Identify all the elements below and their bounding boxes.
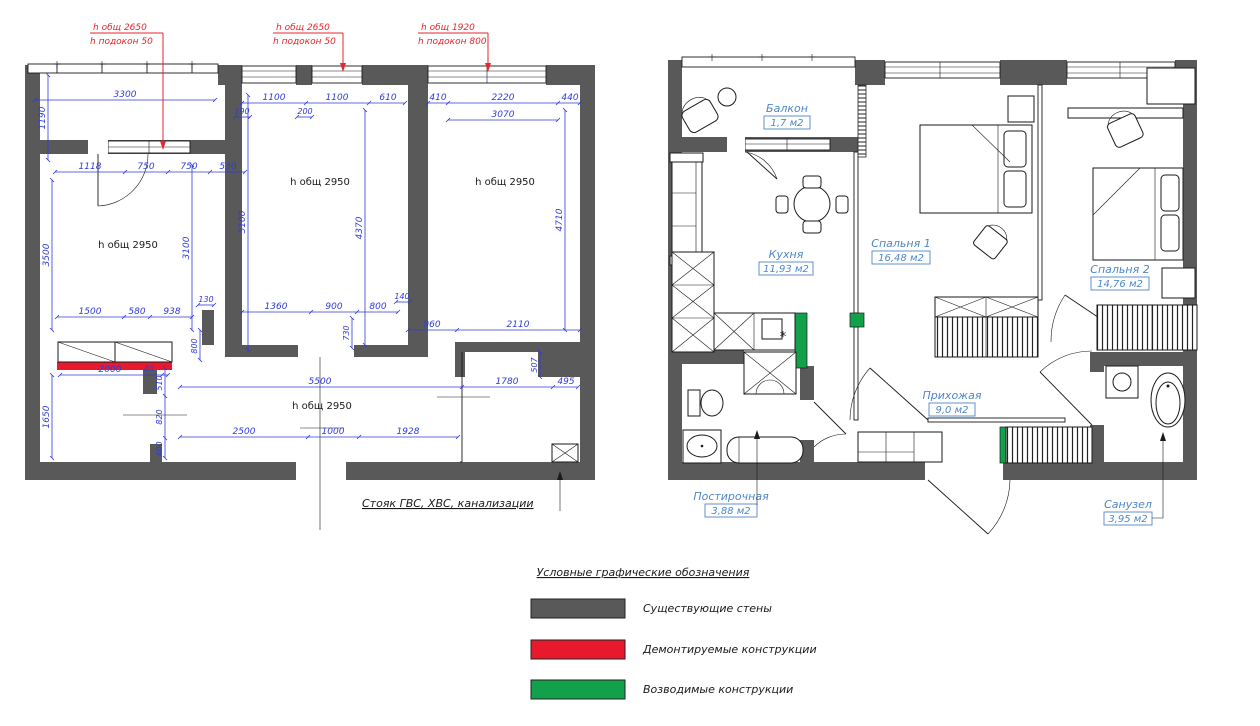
dim-label: 400 bbox=[155, 441, 164, 456]
room-area-badge: 3,95 м2 bbox=[1108, 514, 1147, 525]
window-callout: h подокон 50 bbox=[273, 37, 336, 47]
nightstand-icon bbox=[1008, 96, 1034, 122]
riser-note-text: Стояк ГВС, ХВС, канализации bbox=[362, 497, 534, 510]
window-callout: h подокон 50 bbox=[90, 37, 153, 47]
dim-label: 580 bbox=[128, 307, 145, 317]
shoe-bench-icon bbox=[858, 432, 942, 462]
dim-label: 5500 bbox=[309, 377, 332, 387]
dim-label: 1928 bbox=[397, 427, 420, 437]
floor-plan-sheet: 3300 1190 1118 750 750 530 1100 1100 610… bbox=[0, 0, 1260, 726]
dim-label: 2220 bbox=[492, 93, 515, 103]
sofa-icon bbox=[670, 153, 703, 265]
dim-label: 190 bbox=[234, 107, 249, 116]
room-label: Спальня 2 bbox=[1090, 263, 1149, 276]
toilet-icon bbox=[1106, 366, 1138, 398]
room-label: Прихожая bbox=[923, 389, 982, 402]
dim-label: 140 bbox=[394, 292, 409, 301]
side-table-icon bbox=[718, 88, 736, 106]
legend-swatch-existing-walls bbox=[531, 599, 625, 618]
dim-label: 1780 bbox=[496, 377, 519, 387]
dim-label: 440 bbox=[561, 93, 578, 103]
legend-label: Демонтируемые конструкции bbox=[642, 643, 817, 656]
riser-symbol bbox=[552, 444, 578, 462]
washing-machine-icon bbox=[727, 437, 803, 463]
room-area-badge: 11,93 м2 bbox=[763, 264, 809, 275]
left-plan: 3300 1190 1118 750 750 530 1100 1100 610… bbox=[25, 23, 595, 530]
room-height-label: h общ 2950 bbox=[290, 177, 350, 188]
window-callout: h общ 1920 bbox=[421, 23, 475, 33]
window-callouts: h общ 2650 h подокон 50 h общ 2650 h под… bbox=[90, 23, 491, 150]
kitchen-counter bbox=[58, 342, 172, 362]
armchair-icon bbox=[677, 92, 720, 135]
legend-title: Условные графические обозначения bbox=[537, 566, 750, 579]
dim-label: 820 bbox=[155, 409, 164, 424]
dim-label: 2000 bbox=[99, 365, 122, 375]
balcony-glazing bbox=[682, 54, 855, 67]
bathtub-icon bbox=[1151, 373, 1185, 427]
dim-label: 3100 bbox=[182, 236, 192, 259]
dim-label: 750 bbox=[180, 162, 197, 172]
dim-label: 900 bbox=[325, 302, 342, 312]
dim-label: 960 bbox=[423, 320, 440, 330]
window-callout: h общ 2650 bbox=[276, 23, 330, 33]
toilet-icon bbox=[688, 390, 723, 416]
dim-label: 3070 bbox=[492, 110, 515, 120]
dim-label: 5100 bbox=[238, 210, 248, 233]
room-label: Постирочная bbox=[693, 490, 769, 503]
room-label: Спальня 1 bbox=[871, 237, 930, 250]
dim-label: 2110 bbox=[507, 320, 530, 330]
dim-label: 4370 bbox=[355, 216, 365, 239]
dim-label: 1100 bbox=[326, 93, 349, 103]
room-area-badge: 9,0 м2 bbox=[936, 405, 969, 416]
room-area-badge: 1,7 м2 bbox=[771, 118, 804, 129]
bed-icon bbox=[920, 125, 1032, 213]
room-height-label: h общ 2950 bbox=[292, 401, 352, 412]
dim-label: 530 bbox=[219, 162, 236, 172]
right-plan: * bbox=[668, 54, 1197, 534]
radiator-icon bbox=[858, 85, 866, 157]
dim-label: 130 bbox=[198, 295, 213, 304]
dim-label: 1500 bbox=[79, 307, 102, 317]
room-area-badge: 14,76 м2 bbox=[1097, 279, 1143, 290]
legend-label: Существующие стены bbox=[643, 602, 772, 615]
dim-label: 730 bbox=[342, 325, 351, 340]
legend-swatch-new-walls bbox=[531, 680, 625, 699]
dining-table-icon bbox=[776, 176, 848, 233]
wardrobe-icon bbox=[935, 297, 1038, 357]
dim-label: 410 bbox=[429, 93, 446, 103]
dim-label: 495 bbox=[557, 377, 574, 387]
dim-label: 4710 bbox=[555, 208, 565, 231]
wardrobe-icon bbox=[1006, 427, 1092, 463]
legend-label: Возводимые конструкции bbox=[643, 683, 793, 696]
room-label: Кухня bbox=[769, 248, 804, 261]
window-callout: h подокон 800 bbox=[418, 37, 487, 47]
dim-label: 1000 bbox=[322, 427, 345, 437]
balcony-glazing bbox=[28, 64, 218, 73]
dim-label: 507 bbox=[530, 356, 539, 372]
room-area-badge: 16,48 м2 bbox=[878, 253, 924, 264]
chair-icon bbox=[972, 220, 1012, 260]
dim-label: 1190 bbox=[38, 106, 48, 129]
kitchen-star: * bbox=[780, 330, 787, 345]
dim-label: 510 bbox=[155, 375, 164, 390]
dim-label: 800 bbox=[190, 338, 199, 353]
bed-icon bbox=[1093, 168, 1183, 260]
legend: Условные графические обозначения Существ… bbox=[531, 566, 817, 699]
dim-label: 3300 bbox=[114, 90, 137, 100]
plan-drawing: 3300 1190 1118 750 750 530 1100 1100 610… bbox=[0, 0, 1260, 726]
dim-label: 1100 bbox=[263, 93, 286, 103]
wardrobe-icon bbox=[1097, 305, 1197, 350]
nightstand-icon bbox=[1162, 268, 1195, 298]
dim-label: 750 bbox=[137, 162, 154, 172]
room-height-label: h общ 2950 bbox=[475, 177, 535, 188]
dim-label: 1360 bbox=[265, 302, 288, 312]
exterior-walls bbox=[25, 65, 595, 480]
legend-swatch-demolished bbox=[531, 640, 625, 659]
dim-label: 1118 bbox=[79, 162, 102, 172]
dim-label: 200 bbox=[297, 107, 312, 116]
dim-label: 800 bbox=[369, 302, 386, 312]
room-label: Санузел bbox=[1104, 498, 1152, 511]
dim-label: 2500 bbox=[233, 427, 256, 437]
dim-label: 610 bbox=[379, 93, 396, 103]
window-callout: h общ 2650 bbox=[93, 23, 147, 33]
room-height-label: h общ 2950 bbox=[98, 240, 158, 251]
dim-label: 3500 bbox=[42, 243, 52, 266]
room-area-badge: 3,88 м2 bbox=[711, 506, 750, 517]
dim-label: 80 bbox=[144, 364, 154, 373]
room-label: Балкон bbox=[766, 102, 808, 115]
dim-label: 1650 bbox=[42, 405, 52, 428]
dim-label: 938 bbox=[163, 307, 180, 317]
sink-icon bbox=[683, 430, 721, 463]
